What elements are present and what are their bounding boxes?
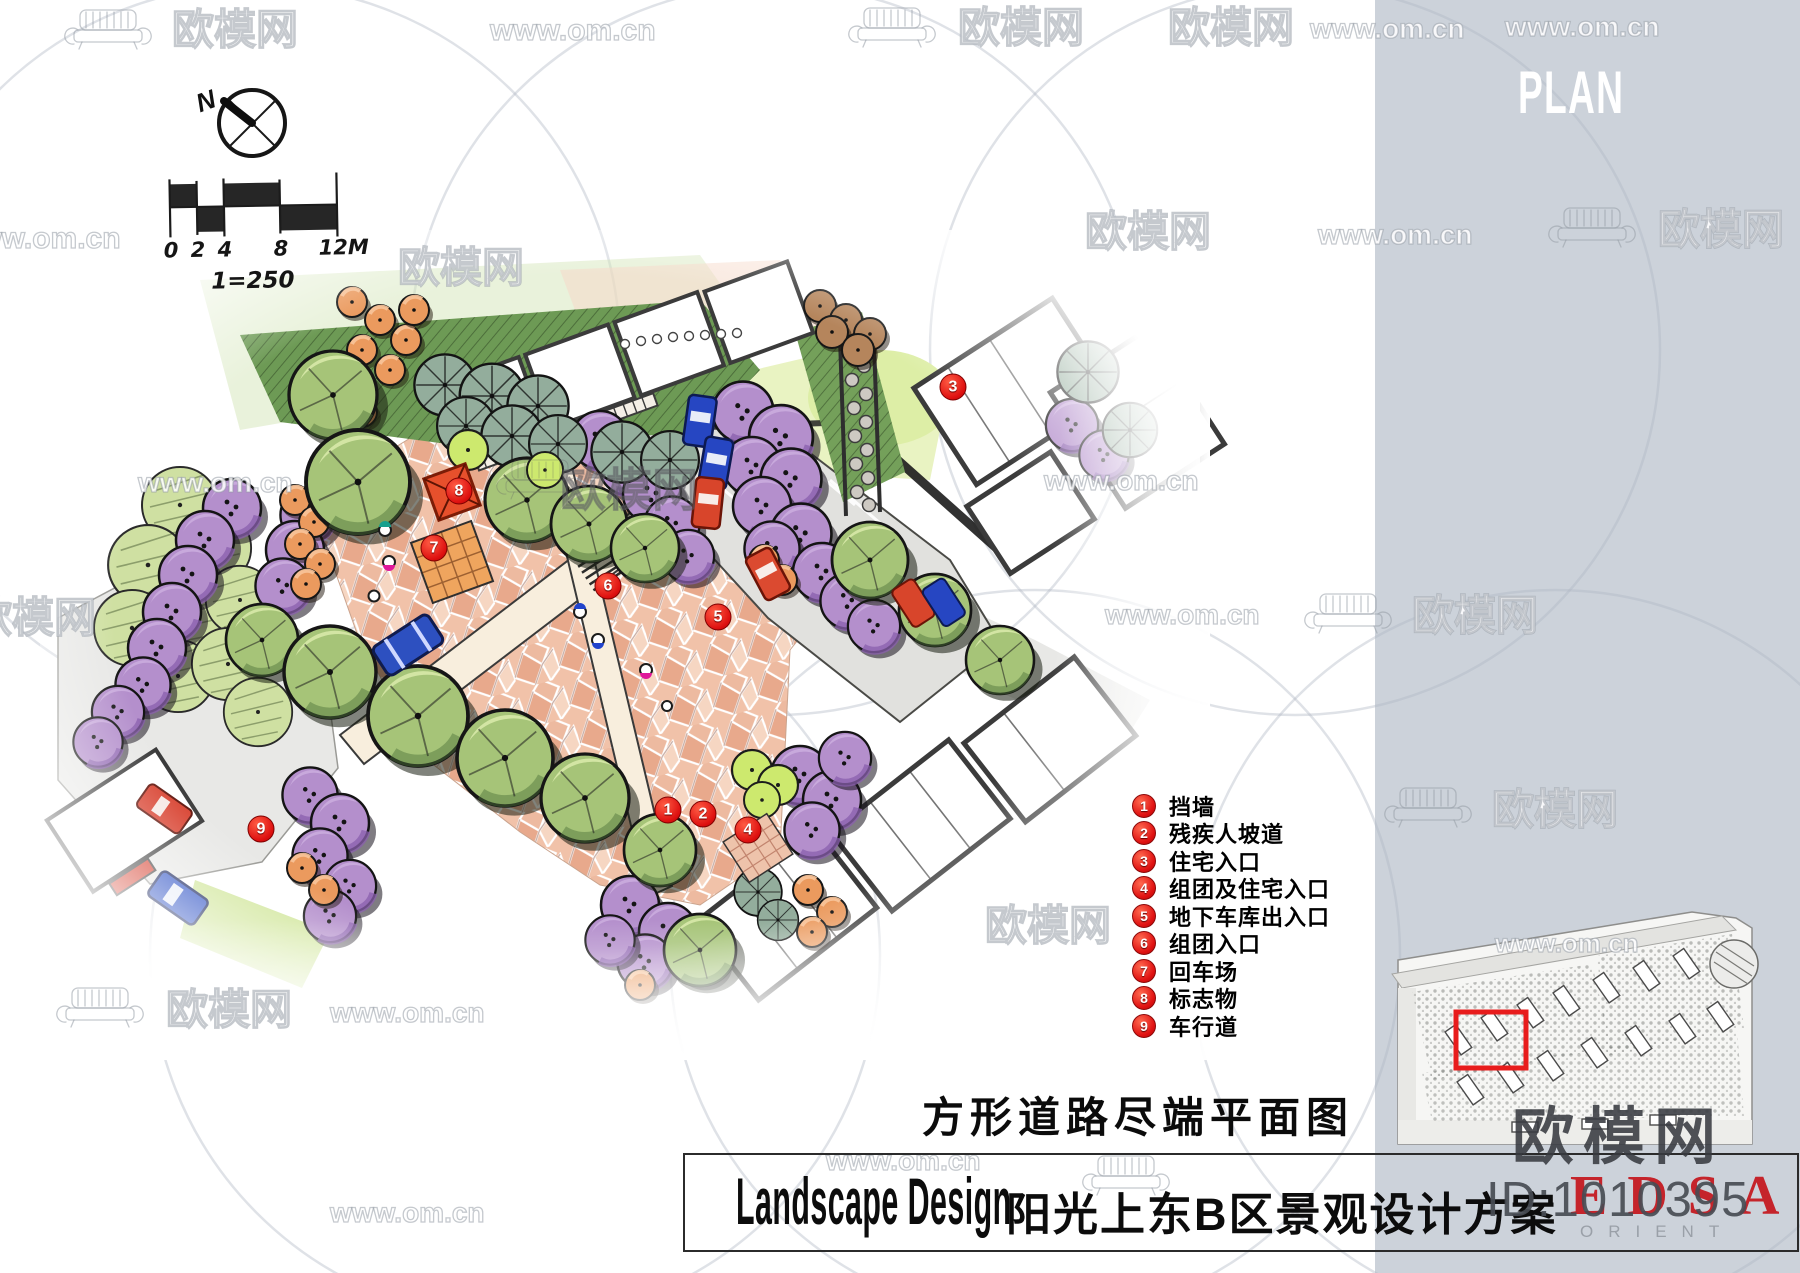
scale-tick: 2: [190, 238, 205, 262]
legend-number-badge: 8: [1132, 986, 1156, 1010]
scale-tick: 8: [273, 236, 288, 260]
scale-ratio: 1=250: [211, 267, 295, 294]
watermark-text: 欧模网: [1492, 786, 1618, 833]
legend-number-badge: 2: [1132, 821, 1156, 845]
sidebar-plan-label: PLAN: [1518, 58, 1624, 127]
watermark-text: 欧模网: [172, 6, 298, 53]
legend-number-badge: 7: [1132, 959, 1156, 983]
watermark-text: www.om.cn: [329, 1197, 485, 1228]
scale-tick: 0: [163, 238, 178, 262]
watermark-text: www.om.cn: [1043, 465, 1199, 496]
drawing-title: 方形道路尽端平面图: [922, 1084, 1354, 1145]
watermark-site-name: 欧模网: [1512, 1086, 1725, 1176]
scale-tick: 12M: [318, 235, 369, 260]
watermark-id: ID:1010395: [1486, 1172, 1749, 1228]
watermark-text: www.om.cn: [1104, 599, 1260, 630]
watermark-text: 欧模网: [1412, 592, 1538, 639]
plan-marker: 7: [421, 535, 448, 562]
legend-item: 2 残疾人坡道: [1132, 820, 1330, 848]
legend-label: 车行道: [1169, 1010, 1238, 1042]
plan-marker: 6: [595, 573, 622, 600]
north-compass: N: [192, 83, 285, 156]
legend-number-badge: 1: [1132, 794, 1156, 818]
watermark-text: 欧模网: [0, 594, 96, 641]
watermark-text: www.om.cn: [1309, 13, 1465, 44]
watermark-text: www.om.cn: [1317, 219, 1473, 250]
plan-marker: 1: [655, 797, 682, 824]
watermark-text: www.om.cn: [1504, 11, 1660, 42]
watermark-text: www.om.cn: [137, 467, 293, 498]
legend-item: 6 组团入口: [1132, 930, 1330, 958]
watermark-text: 欧模网: [1085, 208, 1211, 255]
project-title-zh: 阳光上东B区景观设计方案: [1006, 1178, 1558, 1243]
plan-marker: 4: [735, 817, 762, 844]
watermark-text: 欧模网: [166, 986, 292, 1033]
legend-item: 4 组团及住宅入口: [1132, 875, 1330, 903]
legend-number-badge: 5: [1132, 904, 1156, 928]
north-label: N: [192, 83, 221, 118]
watermark-text: 欧模网: [958, 4, 1084, 51]
watermark-text: 欧模网: [1658, 206, 1784, 253]
watermark-text: www.om.cn: [0, 222, 121, 255]
legend-item: 9 车行道: [1132, 1012, 1330, 1040]
legend-item: 1 挡墙: [1132, 792, 1330, 820]
scale-tick: 4: [216, 237, 232, 261]
watermark-text-dark: 欧模网: [560, 464, 698, 516]
design-sheet: N 0 2 4 8 12M 1=250: [0, 0, 1800, 1273]
watermark-text: www.om.cn: [489, 14, 656, 47]
plan-legend: 1 挡墙 2 残疾人坡道 3 住宅入口 4 组团及住宅入口 5 地下车库出入口 …: [1132, 792, 1330, 1040]
legend-number-badge: 3: [1132, 849, 1156, 873]
legend-item: 7 回车场: [1132, 957, 1330, 985]
legend-number-badge: 9: [1132, 1014, 1156, 1038]
plan-marker: 2: [690, 801, 717, 828]
watermark-text: 欧模网: [1168, 4, 1294, 51]
watermark-text: www.om.cn: [329, 997, 485, 1028]
watermark-text: 欧模网: [985, 902, 1111, 949]
legend-number-badge: 4: [1132, 876, 1156, 900]
legend-number-badge: 6: [1132, 931, 1156, 955]
plan-marker: 8: [446, 478, 473, 505]
watermark-text: www.om.cn: [1494, 928, 1639, 958]
plan-marker: 5: [705, 604, 732, 631]
legend-item: 3 住宅入口: [1132, 847, 1330, 875]
project-title-en: Landscape Design: [736, 1163, 1012, 1239]
legend-item: 8 标志物: [1132, 985, 1330, 1013]
sheet-artwork: N 0 2 4 8 12M 1=250: [0, 0, 1800, 1273]
watermark-text: 欧模网: [398, 244, 524, 291]
plan-marker: 3: [940, 374, 967, 401]
plan-marker: 9: [248, 816, 275, 843]
legend-item: 5 地下车库出入口: [1132, 902, 1330, 930]
